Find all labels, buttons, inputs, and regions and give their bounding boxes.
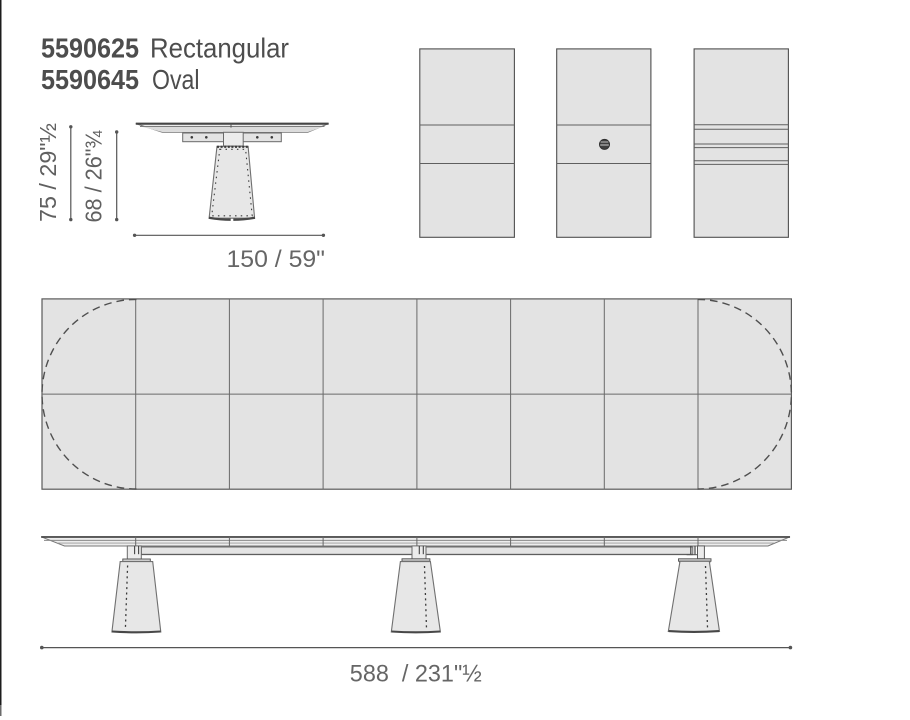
svg-text:5590625: 5590625 — [41, 33, 139, 64]
svg-text:5590645: 5590645 — [41, 64, 139, 95]
svg-text:150 / 59": 150 / 59" — [227, 246, 326, 273]
svg-text:588 / 231"½: 588 / 231"½ — [350, 660, 482, 687]
svg-text:75 / 29"½: 75 / 29"½ — [35, 123, 61, 222]
svg-text:Rectangular: Rectangular — [150, 33, 289, 64]
svg-text:68 / 26"¾: 68 / 26"¾ — [81, 130, 107, 223]
svg-text:Oval: Oval — [152, 64, 200, 95]
